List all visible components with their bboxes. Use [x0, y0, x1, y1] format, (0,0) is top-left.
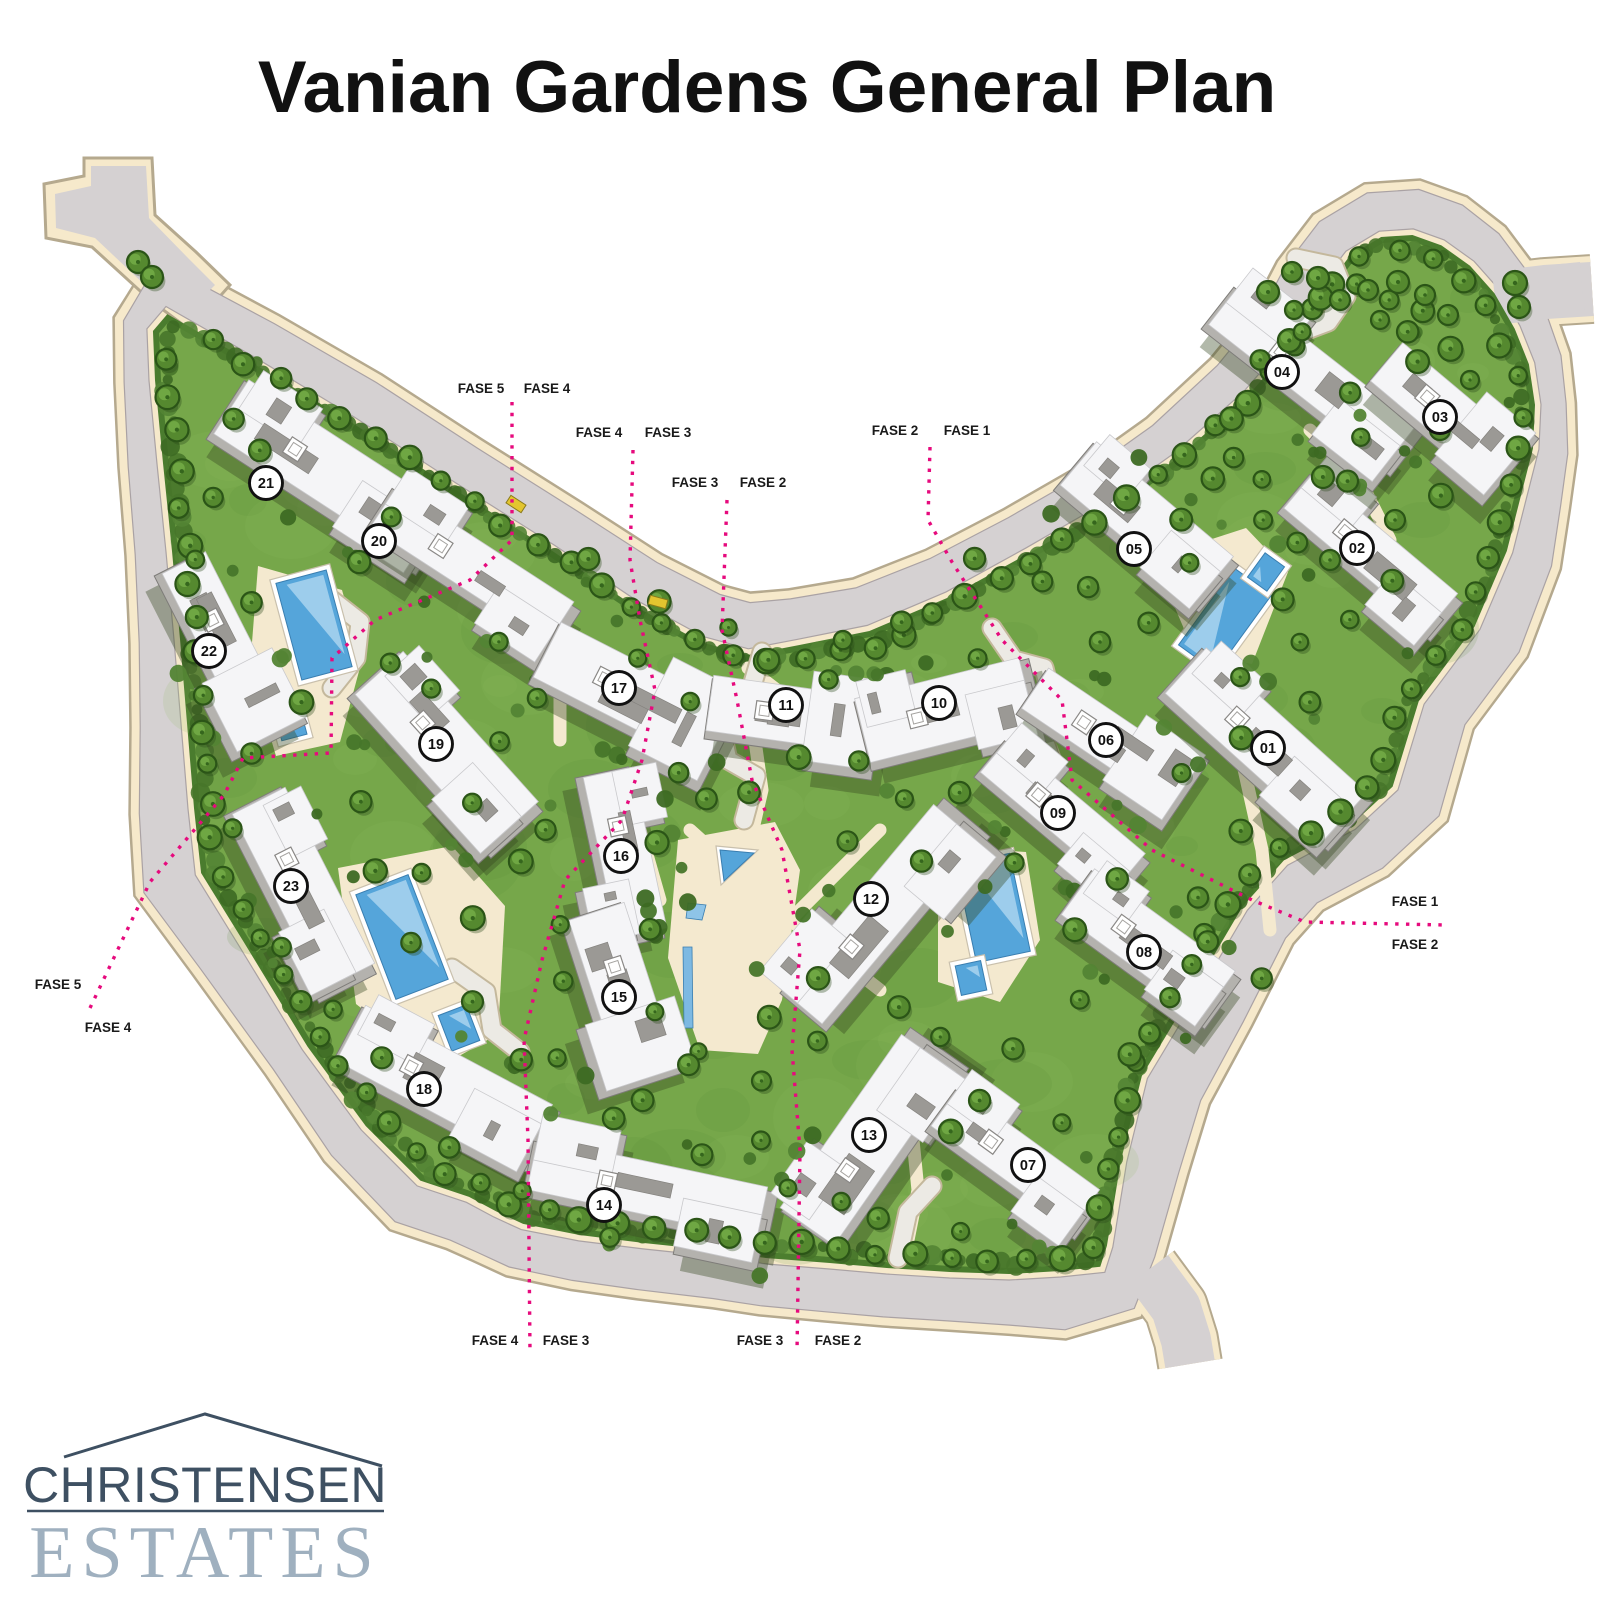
svg-text:12: 12 [863, 892, 879, 908]
svg-text:21: 21 [258, 476, 274, 492]
svg-text:FASE 3: FASE 3 [737, 1333, 784, 1348]
svg-text:FASE 2: FASE 2 [1392, 937, 1439, 952]
svg-text:FASE 5: FASE 5 [458, 381, 505, 396]
svg-text:FASE 1: FASE 1 [1392, 894, 1439, 909]
svg-text:FASE 3: FASE 3 [543, 1333, 590, 1348]
svg-text:FASE 4: FASE 4 [85, 1020, 132, 1035]
svg-text:FASE 3: FASE 3 [645, 425, 692, 440]
svg-text:22: 22 [201, 644, 217, 660]
svg-text:Vanian Gardens General Plan: Vanian Gardens General Plan [258, 47, 1276, 128]
svg-text:10: 10 [931, 696, 947, 712]
svg-text:CHRISTENSEN: CHRISTENSEN [23, 1457, 387, 1513]
svg-text:15: 15 [611, 990, 627, 1006]
svg-text:18: 18 [416, 1082, 432, 1098]
svg-text:02: 02 [1349, 541, 1365, 557]
svg-text:03: 03 [1432, 410, 1448, 426]
svg-text:FASE 5: FASE 5 [35, 977, 82, 992]
svg-text:08: 08 [1136, 945, 1152, 961]
svg-text:14: 14 [596, 1198, 612, 1214]
svg-text:01: 01 [1260, 741, 1276, 757]
svg-text:FASE 3: FASE 3 [672, 475, 719, 490]
svg-text:19: 19 [428, 737, 444, 753]
svg-text:05: 05 [1126, 542, 1142, 558]
svg-text:FASE 4: FASE 4 [576, 425, 623, 440]
svg-text:FASE 2: FASE 2 [740, 475, 787, 490]
svg-text:23: 23 [283, 879, 299, 895]
svg-text:11: 11 [778, 698, 793, 714]
svg-text:FASE 4: FASE 4 [524, 381, 571, 396]
svg-text:ESTATES: ESTATES [29, 1512, 380, 1594]
svg-text:13: 13 [861, 1128, 877, 1144]
svg-text:FASE 2: FASE 2 [872, 423, 919, 438]
svg-text:FASE 4: FASE 4 [472, 1333, 519, 1348]
svg-text:20: 20 [371, 534, 387, 550]
svg-text:07: 07 [1020, 1158, 1036, 1174]
svg-text:16: 16 [613, 849, 629, 865]
svg-text:FASE 1: FASE 1 [944, 423, 991, 438]
svg-text:06: 06 [1098, 733, 1114, 749]
svg-text:09: 09 [1050, 806, 1066, 822]
svg-text:04: 04 [1274, 365, 1290, 381]
svg-text:FASE 2: FASE 2 [815, 1333, 862, 1348]
svg-text:17: 17 [611, 681, 627, 697]
